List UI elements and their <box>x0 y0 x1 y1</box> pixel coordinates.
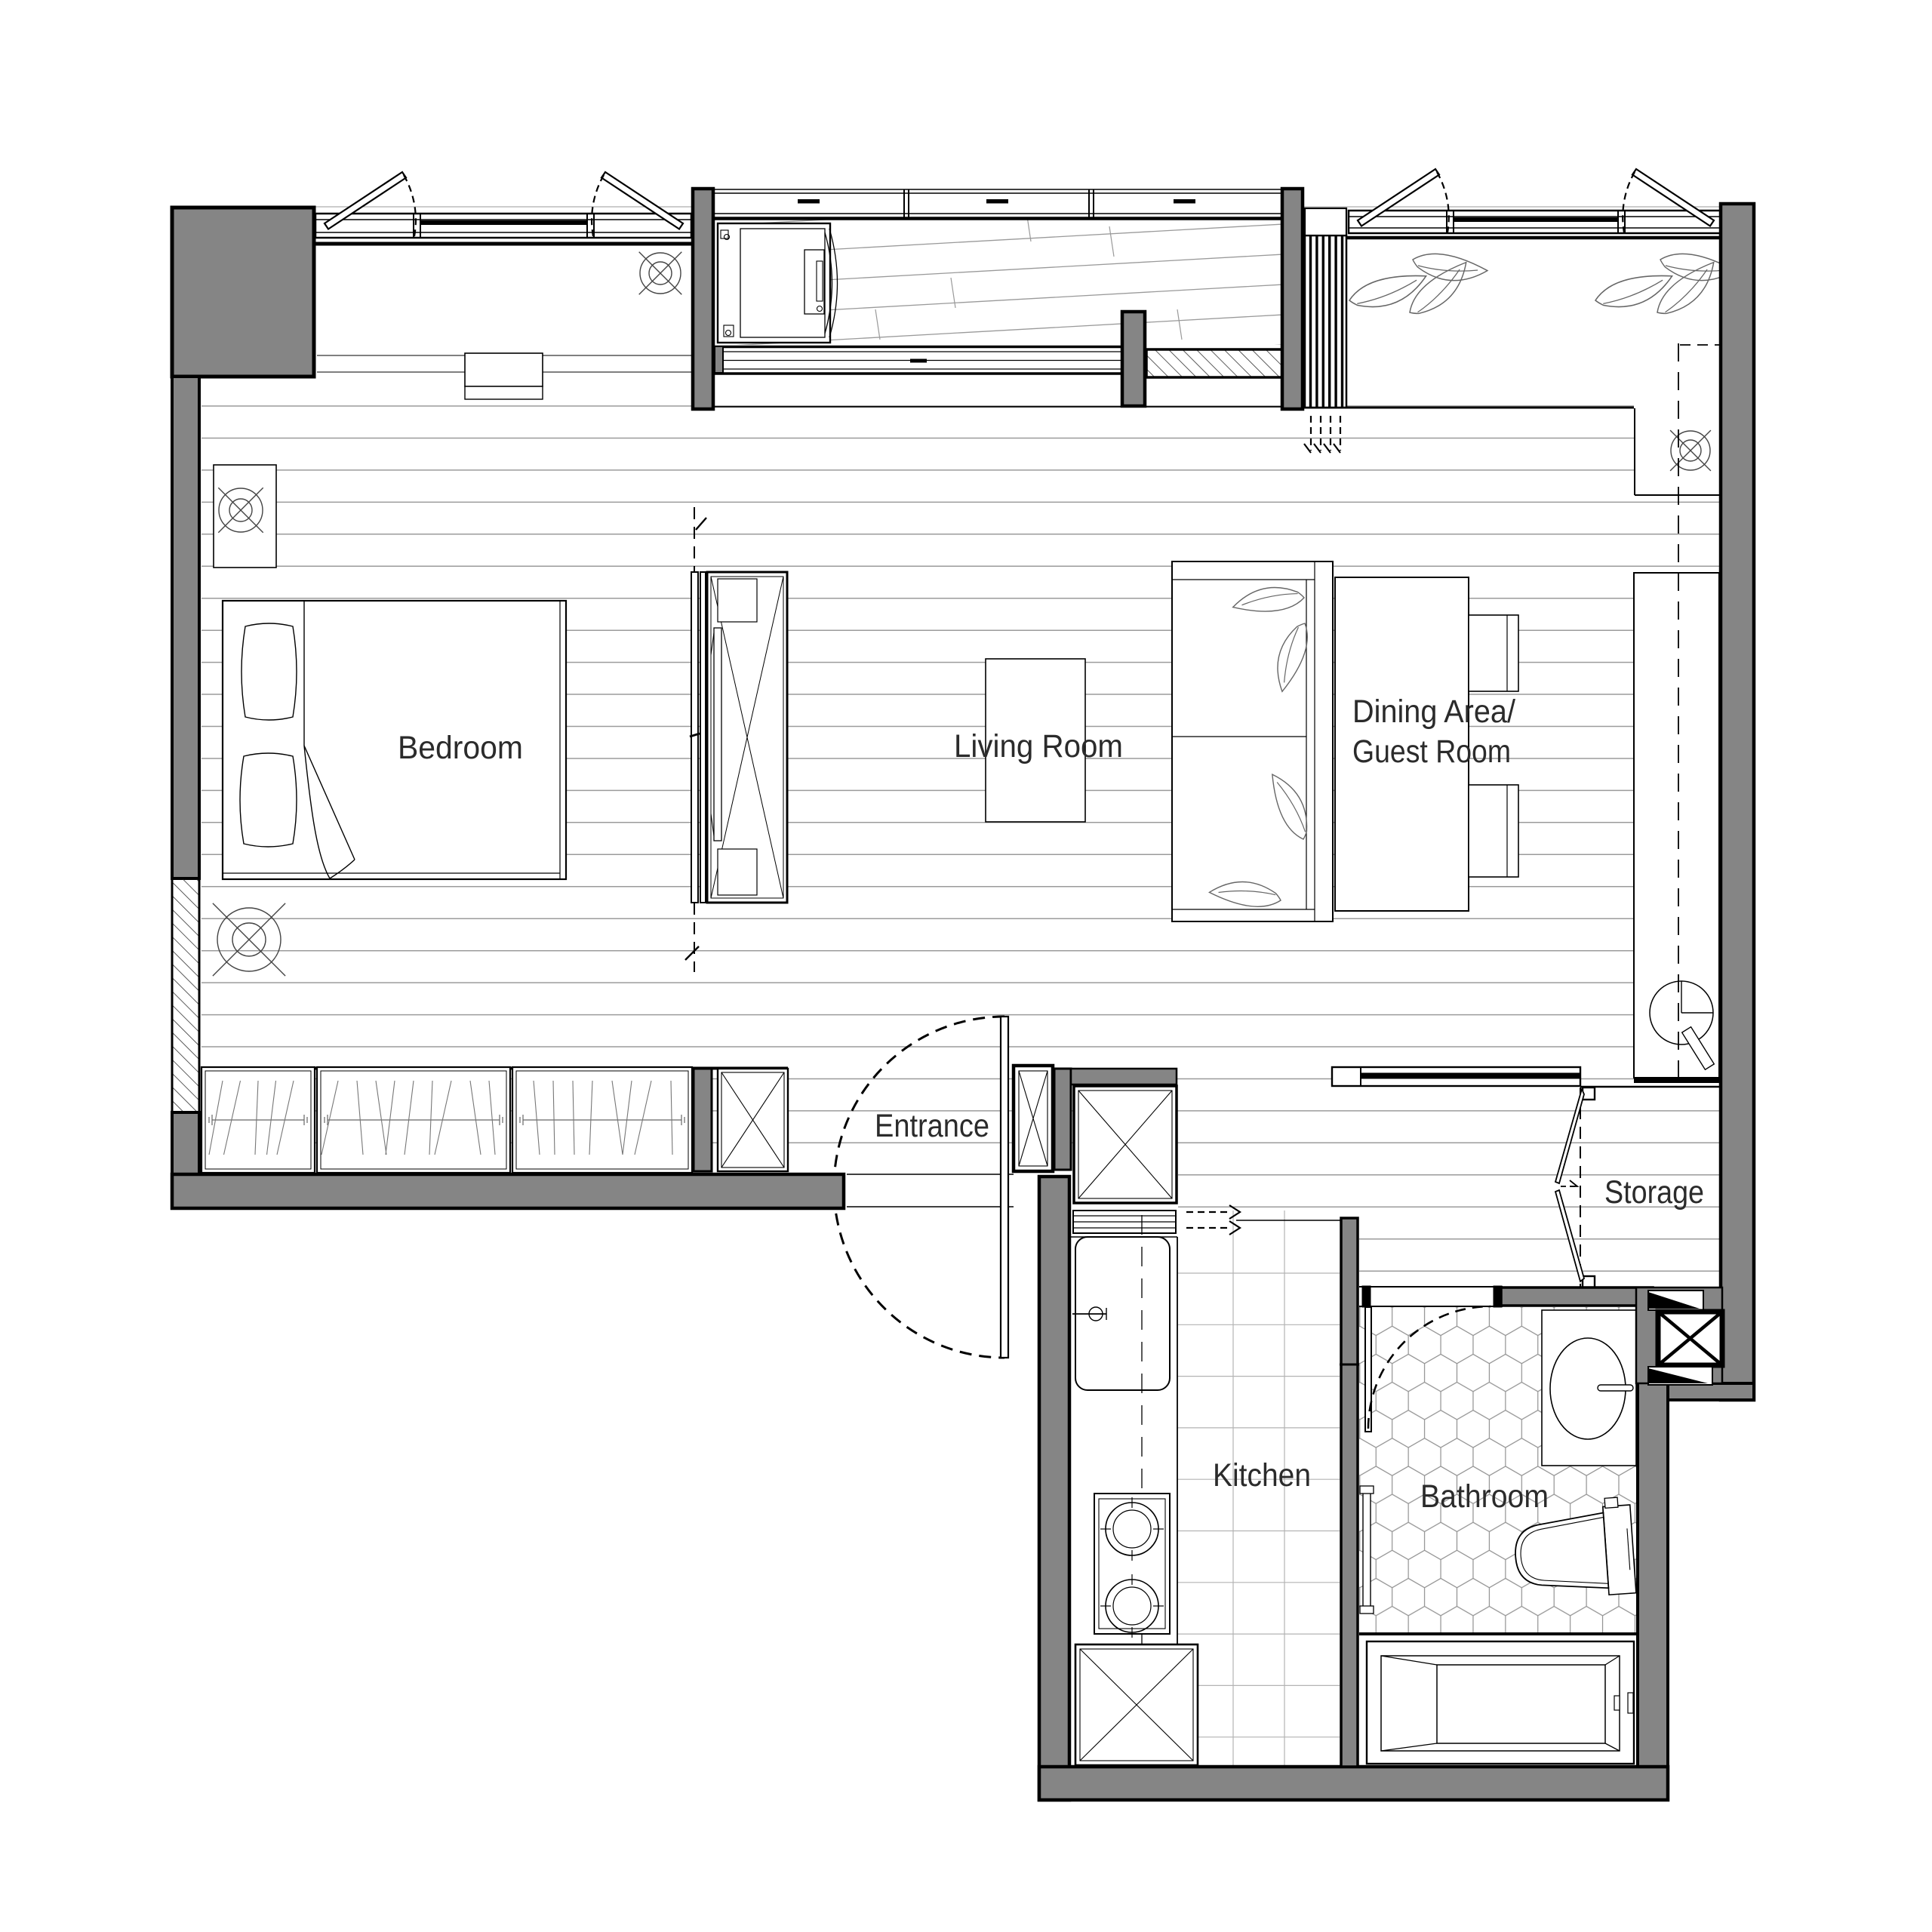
svg-text:Kitchen: Kitchen <box>1213 1457 1311 1494</box>
svg-text:Bedroom: Bedroom <box>398 730 523 766</box>
svg-text:Dining Area/: Dining Area/ <box>1352 694 1515 730</box>
svg-text:Bathroom: Bathroom <box>1420 1478 1549 1515</box>
svg-text:Living Room: Living Room <box>954 728 1123 764</box>
svg-text:Entrance: Entrance <box>875 1108 989 1144</box>
svg-text:Storage: Storage <box>1604 1174 1704 1211</box>
svg-text:Guest Room: Guest Room <box>1352 734 1511 770</box>
